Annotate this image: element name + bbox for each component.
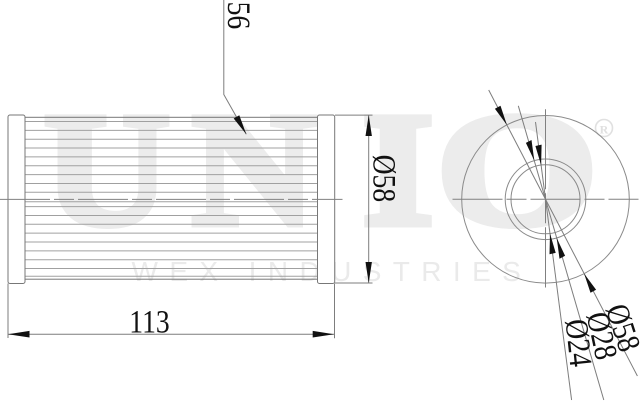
svg-text:Ø24: Ø24: [558, 317, 599, 368]
svg-text:R: R: [600, 123, 609, 137]
svg-text:113: 113: [129, 303, 169, 340]
svg-text:Ø58: Ø58: [366, 155, 403, 203]
svg-text:56: 56: [220, 2, 257, 30]
